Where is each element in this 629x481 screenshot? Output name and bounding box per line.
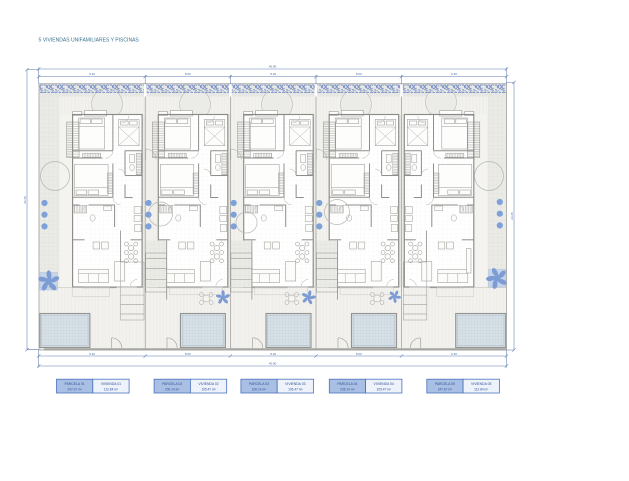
svg-text:VIVIENDA 05: VIVIENDA 05 [471, 382, 491, 386]
svg-text:112.84 m²: 112.84 m² [104, 387, 118, 391]
svg-text:PARCELA 05: PARCELA 05 [435, 382, 455, 386]
svg-text:PARCELA 04: PARCELA 04 [337, 382, 357, 386]
svg-text:40.80: 40.80 [269, 65, 277, 69]
svg-text:9.30: 9.30 [451, 352, 457, 356]
svg-text:8.20: 8.20 [270, 352, 276, 356]
svg-text:8.20: 8.20 [270, 72, 276, 76]
svg-text:247.67 m²: 247.67 m² [438, 387, 452, 391]
svg-text:200.14 m²: 200.14 m² [252, 387, 266, 391]
svg-text:247.07 m²: 247.07 m² [67, 387, 81, 391]
svg-text:PARCELA 03: PARCELA 03 [249, 382, 269, 386]
svg-text:VIVIENDA 01: VIVIENDA 01 [101, 382, 121, 386]
svg-text:VIVIENDA 02: VIVIENDA 02 [198, 382, 218, 386]
svg-text:105.47 m²: 105.47 m² [377, 387, 391, 391]
svg-text:PARCELA 02: PARCELA 02 [162, 382, 182, 386]
svg-text:9.30: 9.30 [451, 72, 457, 76]
svg-text:5 VIVIENDAS UNIFAMILIARES Y PI: 5 VIVIENDAS UNIFAMILIARES Y PISCINAS [39, 38, 140, 44]
svg-text:9.30: 9.30 [89, 72, 95, 76]
svg-text:40.80: 40.80 [269, 362, 277, 366]
svg-text:105.47 m²: 105.47 m² [288, 387, 302, 391]
svg-text:200.14 m²: 200.14 m² [165, 387, 179, 391]
svg-text:8.00: 8.00 [185, 72, 191, 76]
svg-text:24.35: 24.35 [23, 196, 27, 204]
svg-text:PARCELA 01: PARCELA 01 [65, 382, 85, 386]
svg-text:236.14 m²: 236.14 m² [340, 387, 354, 391]
svg-text:112.84 m²: 112.84 m² [474, 387, 488, 391]
svg-text:23.45: 23.45 [510, 212, 514, 220]
svg-text:VIVIENDA 04: VIVIENDA 04 [374, 382, 394, 386]
svg-text:8.00: 8.00 [356, 352, 362, 356]
svg-text:105.47 m²: 105.47 m² [201, 387, 215, 391]
svg-text:9.30: 9.30 [89, 352, 95, 356]
svg-text:8.00: 8.00 [185, 352, 191, 356]
svg-text:8.00: 8.00 [356, 72, 362, 76]
svg-text:VIVIENDA 03: VIVIENDA 03 [285, 382, 305, 386]
